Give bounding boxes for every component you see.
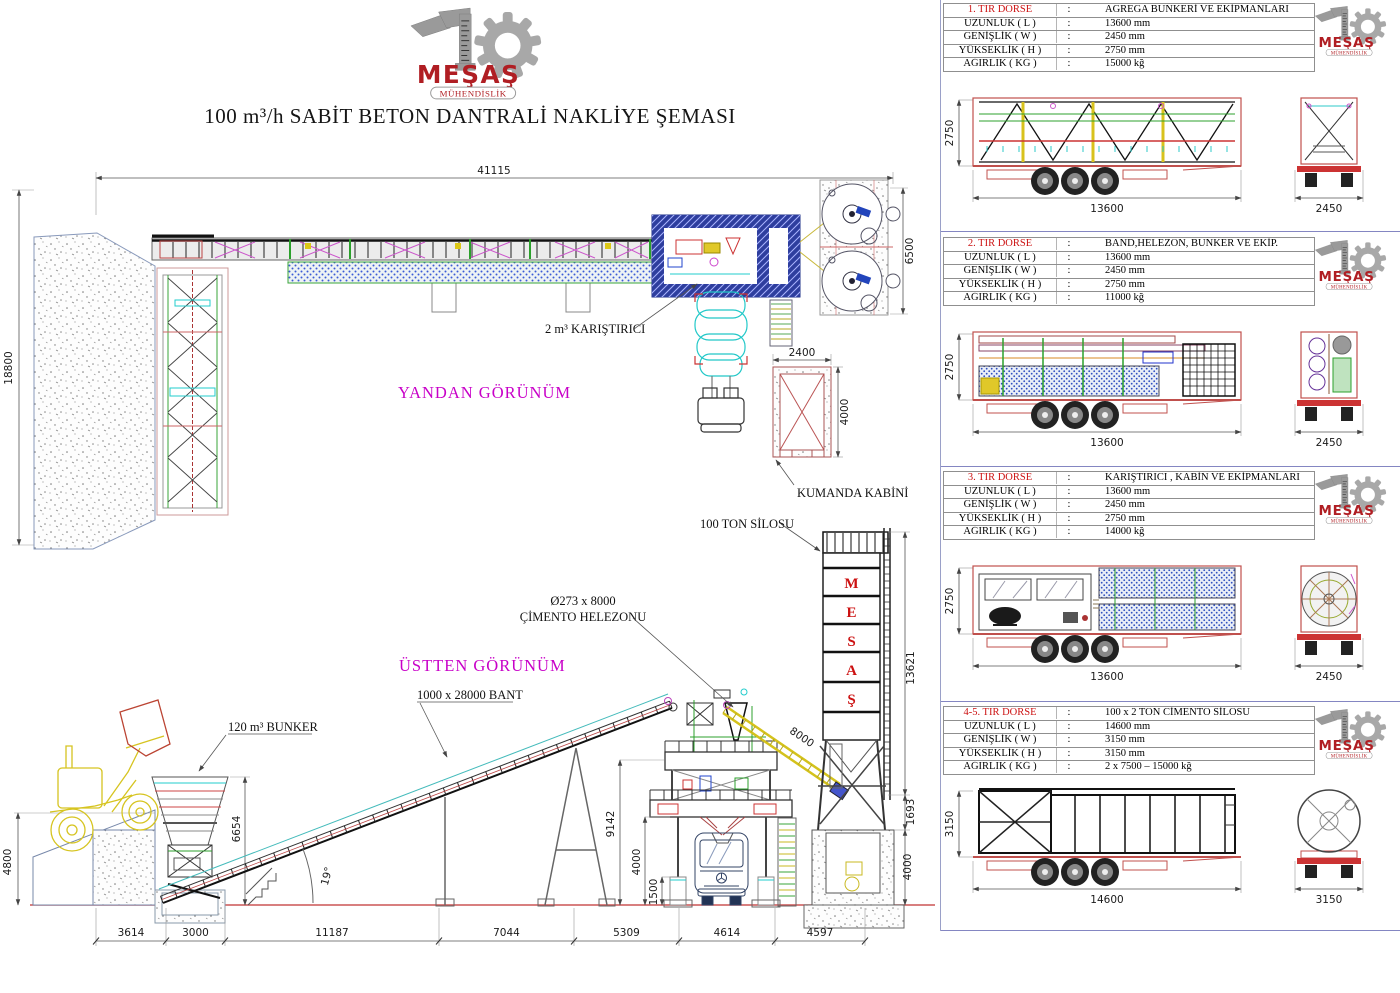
mixer-building-plan: [652, 215, 800, 297]
table-row: AĞIRLIK ( KĞ ):15000 kğ: [943, 58, 1315, 72]
spec-label: GENİŞLİK ( W ): [944, 499, 1057, 511]
label-screw-line1: Ø273 x 8000: [550, 594, 615, 608]
trailer-panel-1: 1. TIR DORSE:AGREGA BUNKERİ VE EKİPMANLA…: [941, 2, 1400, 233]
trailer-length-dim: 13600: [1090, 203, 1123, 215]
table-row: UZUNLUK ( L ):14600 mm: [943, 721, 1315, 735]
colon: :: [1057, 486, 1081, 498]
trailer-cargo: AGREGA BUNKERİ VE EKİPMANLARI: [1081, 4, 1314, 16]
table-row: 2. TIR DORSE:BAND,HELEZON, BUNKER VE EKİ…: [943, 237, 1315, 252]
mesas-logo: [1312, 5, 1398, 57]
spec-label: AĞIRLIK ( KĞ ): [944, 526, 1057, 538]
panel-separator: [941, 231, 1400, 232]
table-row: YÜKSEKLİK ( H ):2750 mm: [943, 279, 1315, 293]
spec-value: 2750 mm: [1081, 513, 1314, 525]
colon: :: [1057, 279, 1081, 291]
table-row: 1. TIR DORSE:AGREGA BUNKERİ VE EKİPMANLA…: [943, 3, 1315, 18]
panel-separator: [941, 701, 1400, 702]
table-row: GENİŞLİK ( W ):2450 mm: [943, 31, 1315, 45]
spec-label: AĞIRLIK ( KĞ ): [944, 292, 1057, 304]
spec-label: YÜKSEKLİK ( H ): [944, 513, 1057, 525]
spec-value: 2450 mm: [1081, 31, 1314, 43]
plan-view: 41115 18800: [3, 165, 916, 549]
table-row: AĞIRLIK ( KĞ ):14000 kğ: [943, 526, 1315, 540]
table-row: 3. TIR DORSE:KARIŞTIRICI , KABİN VE EKİP…: [943, 471, 1315, 486]
trailer-length-dim: 14600: [1090, 894, 1123, 906]
cement-silo: MESAŞ: [804, 528, 904, 928]
trailer-cargo: 100 x 2 TON CİMENTO SİLOSU: [1081, 707, 1314, 719]
spec-value: 15000 kğ: [1081, 58, 1314, 70]
dim-screw-length: 8000: [787, 725, 816, 750]
control-cabin-plan: [773, 367, 831, 457]
dim-silo-gap: 1693: [905, 799, 917, 826]
spec-label: YÜKSEKLİK ( H ): [944, 45, 1057, 57]
table-row: YÜKSEKLİK ( H ):2750 mm: [943, 513, 1315, 527]
trailer-spec-table: 2. TIR DORSE:BAND,HELEZON, BUNKER VE EKİ…: [943, 237, 1315, 306]
spec-value: 2750 mm: [1081, 45, 1314, 57]
trailer-panel-4: 4-5. TIR DORSE:100 x 2 TON CİMENTO SİLOS…: [941, 705, 1400, 936]
ladder-plan: [770, 300, 792, 346]
spec-label: UZUNLUK ( L ): [944, 252, 1057, 264]
dim-cabin-depth: 4000: [839, 399, 851, 426]
label-screw-line2: ÇİMENTO HELEZONU: [520, 610, 647, 624]
spec-value: 11000 kğ: [1081, 292, 1314, 304]
spec-value: 2 x 7500 – 15000 kğ: [1081, 761, 1314, 773]
colon: :: [1057, 252, 1081, 264]
colon: :: [1057, 31, 1081, 43]
spec-label: GENİŞLİK ( W ): [944, 31, 1057, 43]
label-side-view: YANDAN GÖRÜNÜM: [398, 383, 571, 402]
label-silo: 100 TON SİLOSU: [700, 517, 794, 531]
table-row: GENİŞLİK ( W ):3150 mm: [943, 734, 1315, 748]
colon: :: [1057, 45, 1081, 57]
aggregate-bunker-plan: [157, 268, 228, 515]
mesas-logo: [1312, 473, 1398, 525]
trailer-width-dim: 2450: [1316, 203, 1343, 215]
mesas-logo: [1312, 239, 1398, 291]
trailer-spec-table: 3. TIR DORSE:KARIŞTIRICI , KABİN VE EKİP…: [943, 471, 1315, 540]
dim-total-length: 41115: [477, 165, 510, 177]
trailer-height-dim: 2750: [944, 354, 956, 381]
mixer-tower: [650, 689, 796, 907]
trailer-cargo: KARIŞTIRICI , KABİN VE EKİPMANLARI: [1081, 472, 1314, 484]
dim-bottom-segment: 3000: [182, 927, 209, 939]
trailer-panel-2: 2. TIR DORSE:BAND,HELEZON, BUNKER VE EKİ…: [941, 236, 1400, 467]
trailer-length-dim: 13600: [1090, 671, 1123, 683]
spec-label: AĞIRLIK ( KĞ ): [944, 761, 1057, 773]
trailer-number: 2. TIR DORSE: [944, 238, 1057, 250]
trailer-length-dim: 13600: [1090, 437, 1123, 449]
dim-tower-height: 9142: [605, 811, 617, 838]
dim-bottom-segment: 3614: [118, 927, 145, 939]
dim-bunker-height: 6654: [231, 815, 243, 842]
panel-separator: [941, 930, 1400, 931]
trailer-drawing: 3150 14600 3150: [943, 777, 1398, 923]
dim-silo-leg-height: 4000: [902, 854, 914, 881]
spec-value: 13600 mm: [1081, 252, 1314, 264]
colon: :: [1057, 18, 1081, 30]
silo-letter: Ş: [847, 692, 855, 708]
label-bunker: 120 m³ BUNKER: [228, 720, 319, 734]
table-row: 4-5. TIR DORSE:100 x 2 TON CİMENTO SİLOS…: [943, 706, 1315, 721]
spec-label: GENİŞLİK ( W ): [944, 265, 1057, 277]
dim-ramp-height: 4800: [2, 849, 14, 876]
colon: :: [1057, 526, 1081, 538]
silo-letter: M: [844, 576, 858, 592]
mesas-logo: [1312, 708, 1398, 760]
aggregate-stockpile-plan: [34, 233, 155, 549]
spec-value: 2450 mm: [1081, 499, 1314, 511]
spec-value: 13600 mm: [1081, 486, 1314, 498]
colon: :: [1057, 761, 1081, 773]
table-row: AĞIRLIK ( KĞ ):2 x 7500 – 15000 kğ: [943, 761, 1315, 775]
spec-value: 14000 kğ: [1081, 526, 1314, 538]
colon: :: [1057, 721, 1081, 733]
table-row: UZUNLUK ( L ):13600 mm: [943, 252, 1315, 266]
spec-value: 14600 mm: [1081, 721, 1314, 733]
label-control-cabin: KUMANDA KABİNİ: [797, 486, 908, 500]
dim-cabin-width: 2400: [789, 347, 816, 359]
spec-label: UZUNLUK ( L ): [944, 486, 1057, 498]
spec-label: AĞIRLIK ( KĞ ): [944, 58, 1057, 70]
dim-silo-height: 13621: [905, 651, 917, 684]
trailer-cargo: BAND,HELEZON, BUNKER VE EKİP.: [1081, 238, 1314, 250]
elevation-view: 4800 6654: [2, 517, 935, 946]
trailer-spec-table: 1. TIR DORSE:AGREGA BUNKERİ VE EKİPMANLA…: [943, 3, 1315, 72]
trailer-number: 1. TIR DORSE: [944, 4, 1057, 16]
dim-bottom-segment: 4597: [807, 927, 834, 939]
table-row: UZUNLUK ( L ):13600 mm: [943, 18, 1315, 32]
colon: :: [1057, 265, 1081, 277]
trailer-spec-table: 4-5. TIR DORSE:100 x 2 TON CİMENTO SİLOS…: [943, 706, 1315, 775]
trailer-number: 4-5. TIR DORSE: [944, 707, 1057, 719]
mixer-truck-front: [695, 833, 748, 905]
spec-value: 2750 mm: [1081, 279, 1314, 291]
dim-bottom-segment: 11187: [315, 927, 348, 939]
label-mixer: 2 m³ KARIŞTIRICI: [545, 322, 645, 336]
label-top-view: ÜSTTEN GÖRÜNÜM: [399, 656, 566, 675]
dim-belt-angle: 19°: [319, 866, 335, 887]
table-row: UZUNLUK ( L ):13600 mm: [943, 486, 1315, 500]
colon: :: [1057, 513, 1081, 525]
trailer-drawing: 2750 13600 2450: [943, 86, 1398, 232]
aggregate-bunker-side: [152, 777, 228, 898]
colon: :: [1057, 238, 1081, 250]
dim-pedestal-height: 1500: [648, 879, 660, 906]
spec-label: UZUNLUK ( L ): [944, 721, 1057, 733]
colon: :: [1057, 734, 1081, 746]
spec-value: 2450 mm: [1081, 265, 1314, 277]
spec-value: 3150 mm: [1081, 748, 1314, 760]
dim-bottom-segment: 4614: [714, 927, 741, 939]
colon: :: [1057, 499, 1081, 511]
table-row: GENİŞLİK ( W ):2450 mm: [943, 265, 1315, 279]
spec-label: YÜKSEKLİK ( H ): [944, 279, 1057, 291]
colon: :: [1057, 58, 1081, 70]
transport-scheme-sheet: { "logo": {"name": "MEŞAŞ", "subtitle": …: [0, 0, 1400, 993]
trailer-height-dim: 3150: [944, 811, 956, 838]
silo-letter: E: [846, 605, 856, 621]
dim-tower-clearance: 4000: [631, 849, 643, 876]
colon: :: [1057, 707, 1081, 719]
trailer-height-dim: 2750: [944, 120, 956, 147]
colon: :: [1057, 748, 1081, 760]
spec-label: YÜKSEKLİK ( H ): [944, 748, 1057, 760]
dim-stock-height: 18800: [3, 351, 15, 384]
silo-letter: S: [847, 634, 855, 650]
panel-separator: [941, 466, 1400, 467]
trailer-drawing: 2750 13600 2450: [943, 554, 1398, 700]
dim-silos-width: 6500: [904, 238, 916, 265]
cement-silos-plan: [800, 180, 900, 315]
trailer-drawing: 2750 13600 2450: [943, 320, 1398, 466]
trailer-height-dim: 2750: [944, 588, 956, 615]
silo-letter: A: [846, 663, 857, 679]
table-row: YÜKSEKLİK ( H ):2750 mm: [943, 45, 1315, 59]
trailer-width-dim: 3150: [1316, 894, 1343, 906]
mixer-truck-plan: [695, 292, 747, 432]
trailer-panels-column: 1. TIR DORSE:AGREGA BUNKERİ VE EKİPMANLA…: [941, 0, 1400, 993]
table-row: GENİŞLİK ( W ):2450 mm: [943, 499, 1315, 513]
colon: :: [1057, 292, 1081, 304]
spec-value: 3150 mm: [1081, 734, 1314, 746]
dim-bottom-segment: 5309: [613, 927, 640, 939]
colon: :: [1057, 472, 1081, 484]
trailer-number: 3. TIR DORSE: [944, 472, 1057, 484]
dim-bottom-segment: 7044: [493, 927, 520, 939]
trailer-panel-3: 3. TIR DORSE:KARIŞTIRICI , KABİN VE EKİP…: [941, 470, 1400, 701]
spec-value: 13600 mm: [1081, 18, 1314, 30]
trailer-width-dim: 2450: [1316, 671, 1343, 683]
spec-label: GENİŞLİK ( W ): [944, 734, 1057, 746]
trailer-width-dim: 2450: [1316, 437, 1343, 449]
label-belt: 1000 x 28000 BANT: [417, 688, 523, 702]
plant-drawing: 41115 18800: [0, 0, 941, 993]
colon: :: [1057, 4, 1081, 16]
table-row: YÜKSEKLİK ( H ):3150 mm: [943, 748, 1315, 762]
table-row: AĞIRLIK ( KĞ ):11000 kğ: [943, 292, 1315, 306]
spec-label: UZUNLUK ( L ): [944, 18, 1057, 30]
